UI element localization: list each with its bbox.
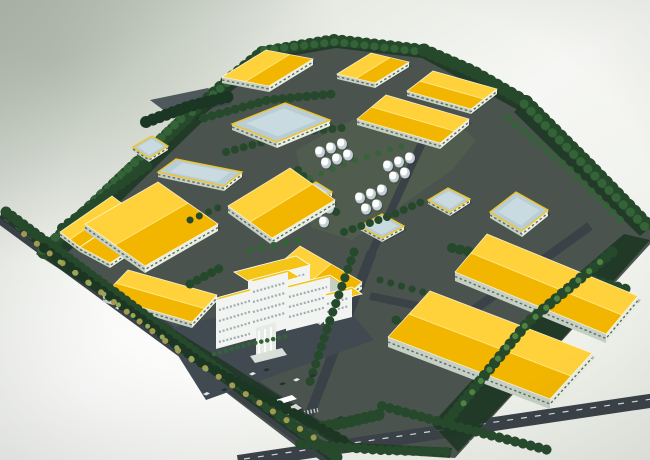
storage-tank-top (377, 185, 384, 193)
industrial-park-rendering (0, 0, 650, 460)
storage-tank-top (394, 157, 401, 165)
storage-tank-top (332, 154, 339, 162)
storage-tank-top (355, 193, 362, 201)
storage-tank-top (343, 150, 350, 158)
storage-tank-top (400, 168, 407, 176)
storage-tank-top (372, 200, 379, 208)
storage-tank-top (405, 153, 412, 161)
storage-tank-top (326, 143, 333, 151)
storage-tank-top (361, 204, 368, 212)
storage-tank-top (319, 217, 326, 225)
storage-tank-top (383, 161, 390, 169)
storage-tank-top (315, 147, 322, 155)
storage-tank-top (366, 189, 373, 197)
storage-tank-top (389, 172, 396, 180)
scene-svg (0, 0, 650, 460)
storage-tank-top (337, 139, 344, 147)
storage-tank-top (321, 158, 328, 166)
